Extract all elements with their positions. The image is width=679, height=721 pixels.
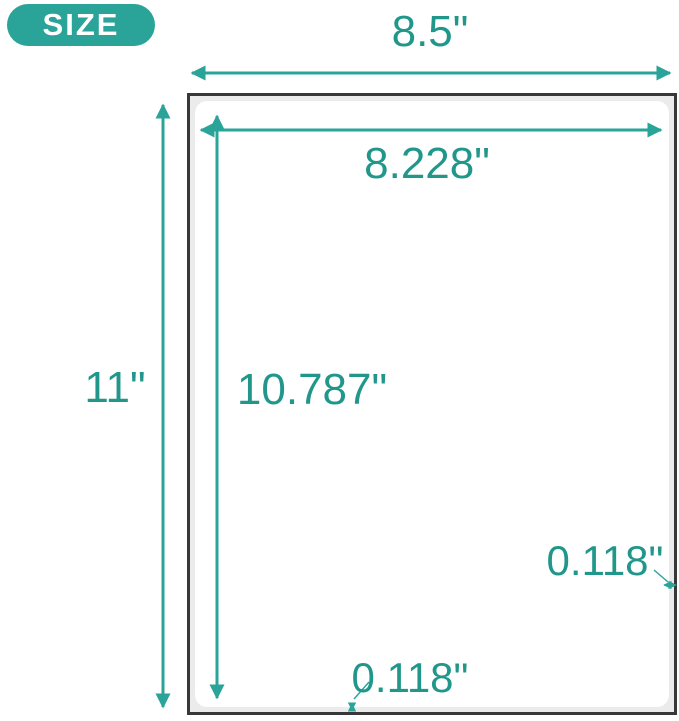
side-margin-label: 0.118" bbox=[547, 540, 664, 582]
bottom-margin-label: 0.118" bbox=[352, 657, 469, 699]
size-badge: SIZE bbox=[7, 4, 155, 46]
sheet-width-label: 8.5" bbox=[392, 10, 469, 54]
label-width-label: 8.228" bbox=[364, 142, 490, 186]
size-diagram: SIZE 8.5" 8.228" 11" 10.787" 0.118" 0.11… bbox=[0, 0, 679, 721]
sheet-height-label: 11" bbox=[84, 366, 145, 410]
label-height-label: 10.787" bbox=[237, 368, 387, 412]
